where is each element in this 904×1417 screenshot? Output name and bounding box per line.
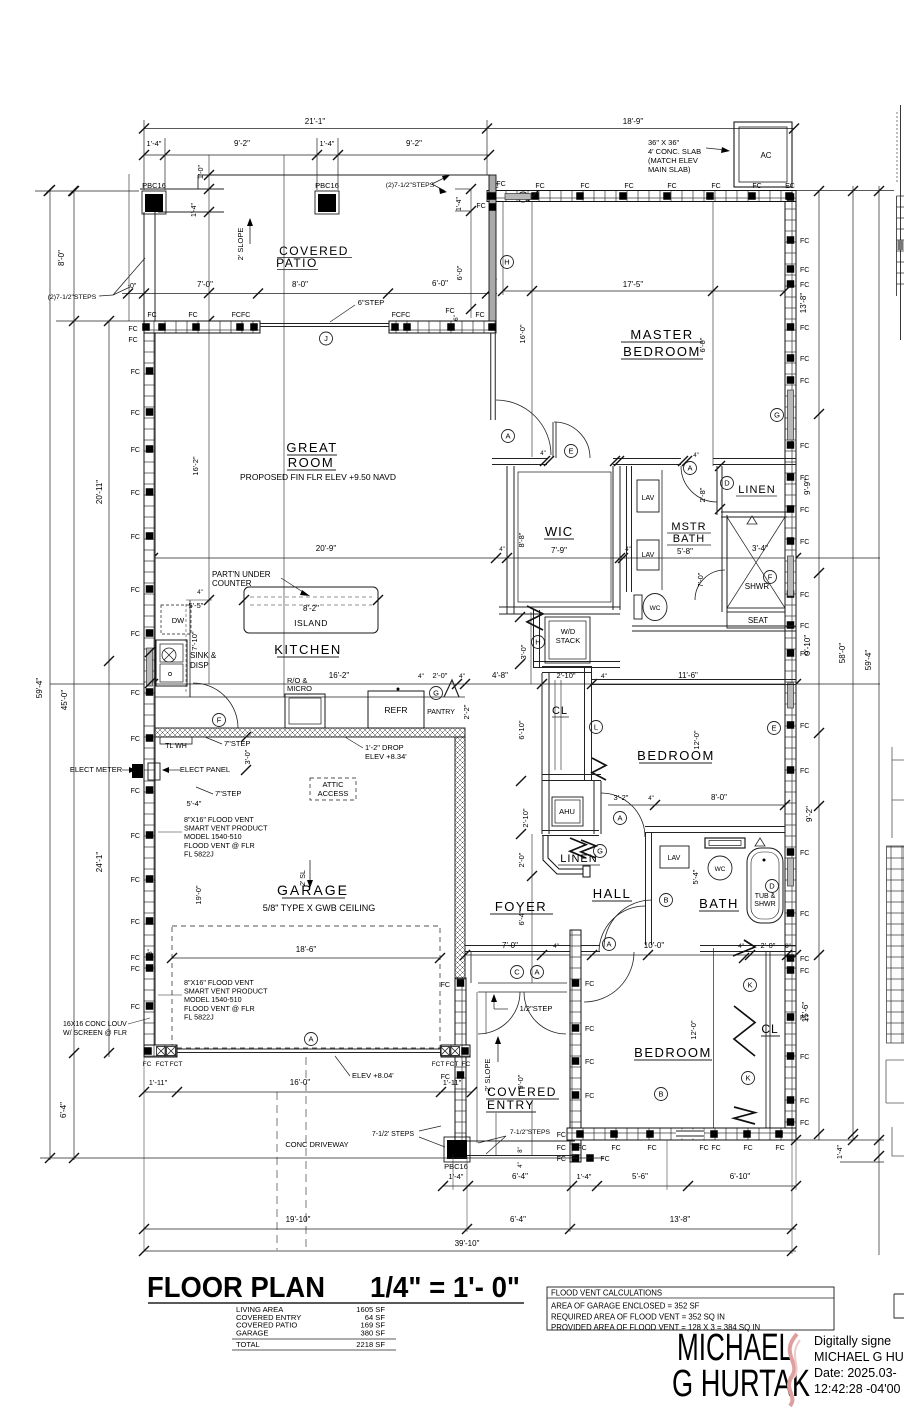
svg-text:MSTR: MSTR [671,521,706,533]
svg-text:MASTER: MASTER [630,327,693,342]
svg-text:FCFC: FCFC [392,312,411,319]
svg-text:ENTRY: ENTRY [487,1098,535,1112]
svg-text:DW: DW [172,616,185,625]
svg-text:6'-0": 6'-0" [698,337,707,352]
svg-text:FC: FC [131,966,140,973]
svg-text:6"STEP: 6"STEP [358,298,384,307]
svg-text:FC: FC [131,447,140,454]
svg-text:FC: FC [611,1145,620,1152]
svg-text:E: E [568,447,573,456]
svg-text:4": 4" [540,451,545,457]
svg-text:FC: FC [667,183,676,190]
svg-text:1'-11": 1'-11" [443,1078,462,1087]
svg-text:PART'N UNDER: PART'N UNDER [212,570,271,579]
svg-text:FC: FC [462,1061,471,1068]
svg-text:6'-4": 6'-4" [512,1172,528,1181]
svg-text:A: A [308,1035,313,1044]
svg-text:1'-2" DROP: 1'-2" DROP [365,743,404,752]
svg-text:6'-10": 6'-10" [517,720,526,739]
svg-text:59'-4": 59'-4" [35,678,44,699]
svg-text:18'-9": 18'-9" [623,117,644,126]
svg-text:FC: FC [475,312,484,319]
svg-text:TUB &: TUB & [755,893,776,900]
svg-text:FLOOR PLAN: FLOOR PLAN [147,1272,325,1304]
svg-text:FCT: FCT [446,1061,459,1068]
svg-text:GREAT: GREAT [286,440,337,455]
svg-text:MICHAEL G HU: MICHAEL G HU [814,1350,904,1364]
svg-text:3'-2": 3'-2" [614,793,629,802]
svg-text:FC: FC [188,312,197,319]
svg-text:FC: FC [131,788,140,795]
svg-text:FC: FC [800,911,809,918]
svg-text:2'-0": 2'-0" [761,941,776,950]
svg-text:4'-8": 4'-8" [492,671,508,680]
svg-text:WC: WC [715,866,726,873]
svg-text:BATH: BATH [673,533,706,545]
svg-text:SHWR: SHWR [754,901,775,908]
svg-text:16'-0": 16'-0" [518,324,527,343]
svg-text:A: A [505,432,510,441]
svg-text:16'-2": 16'-2" [329,671,350,680]
svg-text:1'-4": 1'-4" [456,197,463,211]
svg-text:7-1/2' STEPS: 7-1/2' STEPS [372,1131,415,1138]
svg-text:18'-6": 18'-6" [296,945,317,954]
svg-text:5/8" TYPE X GWB CEILING: 5/8" TYPE X GWB CEILING [263,903,376,913]
svg-text:FC: FC [476,203,485,210]
svg-text:16X16 CONC LOUV: 16X16 CONC LOUV [63,1021,127,1028]
svg-text:1'-4": 1'-4" [837,1145,844,1159]
svg-text:FC: FC [131,690,140,697]
svg-text:W/D: W/D [561,627,576,636]
svg-text:FC: FC [800,1015,809,1022]
svg-text:FC: FC [800,475,809,482]
svg-text:20'-9": 20'-9" [316,544,337,553]
svg-text:FC: FC [535,183,544,190]
svg-text:BEDROOM: BEDROOM [634,1045,712,1060]
svg-text:PBC16: PBC16 [444,1162,468,1171]
svg-text:6": 6" [454,315,460,320]
svg-text:17'-5": 17'-5" [623,280,644,289]
svg-text:FC: FC [800,539,809,546]
svg-text:FC: FC [131,955,140,962]
svg-text:FL 5822J: FL 5822J [184,849,214,858]
svg-text:FCT: FCT [170,1061,183,1068]
svg-text:ISLAND: ISLAND [294,618,328,628]
svg-text:4": 4" [693,453,698,459]
svg-text:TOTAL: TOTAL [236,1340,260,1349]
svg-text:8": 8" [147,948,154,955]
svg-text:FC: FC [441,982,450,989]
svg-text:FC: FC [585,1059,594,1066]
svg-text:FL 5822J: FL 5822J [184,1012,214,1021]
svg-text:FC: FC [128,326,137,333]
svg-text:9'-2": 9'-2" [805,806,814,822]
svg-text:-0": -0" [128,283,137,290]
svg-text:FC: FC [557,1132,566,1139]
svg-text:FC: FC [800,325,809,332]
svg-text:FC: FC [624,183,633,190]
svg-text:11'-6": 11'-6" [678,671,698,680]
svg-text:3'-0": 3'-0" [519,644,528,659]
svg-text:(2)7-1/2"STEPS: (2)7-1/2"STEPS [386,182,435,189]
svg-text:6'-10": 6'-10" [730,1172,751,1181]
svg-text:FC: FC [577,1145,586,1152]
svg-text:7'-10": 7'-10" [190,631,199,650]
svg-text:13'-8": 13'-8" [799,293,808,314]
svg-text:CONC DRIVEWAY: CONC DRIVEWAY [285,1140,348,1149]
svg-text:6'-4": 6'-4" [510,1215,526,1224]
svg-text:ATTIC: ATTIC [322,780,344,789]
svg-text:7-1/2"STEPS: 7-1/2"STEPS [510,1129,551,1136]
svg-text:FC: FC [800,443,809,450]
svg-text:FC: FC [800,267,809,274]
svg-text:FC: FC [800,1054,809,1061]
svg-text:2' SL: 2' SL [300,870,307,886]
svg-text:16'-2": 16'-2" [191,456,200,475]
svg-text:FC: FC [131,369,140,376]
svg-text:Digitally signe: Digitally signe [814,1334,891,1348]
svg-text:7'-0": 7'-0" [502,941,518,950]
svg-text:4": 4" [738,944,743,950]
svg-text:1/4" = 1'- 0": 1/4" = 1'- 0" [370,1272,520,1304]
svg-text:BATH: BATH [699,896,739,911]
svg-text:FC: FC [800,378,809,385]
svg-text:SINK &: SINK & [190,651,217,660]
svg-text:J: J [324,334,328,343]
svg-text:9'-2": 9'-2" [234,139,250,148]
svg-text:FC: FC [131,490,140,497]
svg-text:B: B [658,1090,663,1099]
svg-text:FC: FC [800,956,809,963]
svg-text:FC: FC [800,507,809,514]
svg-text:PBC16: PBC16 [315,181,339,190]
svg-text:F: F [768,573,773,582]
svg-text:ELEV +8.34': ELEV +8.34' [365,752,407,761]
svg-text:19'-0": 19'-0" [194,885,203,904]
svg-text:7"STEP: 7"STEP [224,739,250,748]
svg-text:FC: FC [585,981,594,988]
svg-text:LAV: LAV [668,855,681,862]
svg-text:TL WH: TL WH [165,743,187,750]
svg-text:LINEN: LINEN [560,853,597,865]
svg-text:2' SLOPE: 2' SLOPE [236,228,245,261]
svg-text:H: H [535,638,540,647]
svg-text:20'-11": 20'-11" [95,480,104,504]
svg-text:8'-0": 8'-0" [711,793,727,802]
svg-text:W/ SCREEN @ FLR: W/ SCREEN @ FLR [63,1030,127,1037]
svg-text:KITCHEN: KITCHEN [274,642,342,657]
svg-text:2218 SF: 2218 SF [356,1340,385,1349]
svg-text:2' SLOPE: 2' SLOPE [483,1059,492,1092]
svg-text:FC: FC [445,308,454,315]
svg-text:1'-4": 1'-4" [191,203,198,217]
svg-text:FC: FC [800,723,809,730]
svg-text:WIC: WIC [545,524,573,539]
svg-text:PATIO: PATIO [276,256,318,270]
svg-text:4": 4" [518,1162,524,1167]
svg-text:4": 4" [459,673,466,680]
svg-text:6'-0": 6'-0" [455,265,464,280]
svg-text:58'-0": 58'-0" [838,643,847,664]
svg-text:CL: CL [761,1022,778,1036]
svg-text:FC: FC [647,1145,656,1152]
svg-text:4": 4" [601,673,608,680]
svg-text:COUNTER: COUNTER [212,579,252,588]
svg-text:12:42:28 -04'00: 12:42:28 -04'00 [814,1382,901,1396]
svg-text:7'-0": 7'-0" [696,572,705,587]
svg-text:FC: FC [600,1156,609,1163]
svg-text:A: A [617,814,622,823]
svg-text:FC: FC [131,877,140,884]
svg-text:FC: FC [131,410,140,417]
svg-text:ROOM: ROOM [288,455,334,470]
svg-text:REFR: REFR [384,705,407,715]
svg-text:FC: FC [800,651,809,658]
svg-text:E: E [771,724,776,733]
svg-text:LINEN: LINEN [738,484,775,496]
svg-text:24'-1": 24'-1" [95,852,104,873]
svg-text:8'-0": 8'-0" [57,250,66,266]
svg-text:2'-10": 2'-10" [521,808,530,827]
svg-text:FC: FC [711,1145,720,1152]
svg-text:2'-2": 2'-2" [462,704,471,719]
svg-text:FC: FC [800,768,809,775]
svg-text:LAV: LAV [642,495,655,502]
svg-text:FC: FC [557,1156,566,1163]
svg-text:K: K [747,981,752,990]
svg-text:FC: FC [699,1145,708,1152]
svg-text:G: G [433,689,439,698]
svg-text:STACK: STACK [556,636,580,645]
svg-text:A: A [606,940,611,949]
svg-text:FLOOD VENT CALCULATIONS: FLOOD VENT CALCULATIONS [551,1289,662,1298]
svg-text:SEAT: SEAT [748,616,768,625]
svg-text:Date: 2025.03-: Date: 2025.03- [814,1366,897,1380]
svg-text:8'-0": 8'-0" [292,280,308,289]
svg-text:PROPOSED FIN FLR ELEV +9.50 NA: PROPOSED FIN FLR ELEV +9.50 NAVD [240,472,396,482]
svg-text:L: L [594,723,598,732]
svg-text:5'-8": 5'-8" [677,547,693,556]
svg-text:8": 8" [518,1147,524,1152]
svg-text:FC: FC [585,1026,594,1033]
svg-text:5'-4": 5'-4" [691,869,700,884]
svg-text:4": 4" [648,796,653,802]
svg-text:380 SF: 380 SF [361,1328,386,1337]
svg-text:FC: FC [496,181,505,188]
svg-text:G: G [774,411,780,420]
svg-text:D: D [724,479,730,488]
svg-text:ELECT PANEL: ELECT PANEL [180,765,230,774]
svg-text:9'-0": 9'-0" [516,1074,525,1089]
svg-text:MAIN SLAB): MAIN SLAB) [648,165,691,174]
svg-text:1'-4": 1'-4" [147,139,162,148]
svg-text:BEDROOM: BEDROOM [637,748,715,763]
svg-text:LAV: LAV [642,552,655,559]
svg-text:5'-4": 5'-4" [187,799,202,808]
svg-text:MICRO: MICRO [287,684,312,693]
svg-text:FC: FC [131,1004,140,1011]
svg-text:AREA OF GARAGE ENCLOSED = 352: AREA OF GARAGE ENCLOSED = 352 SF [551,1302,700,1311]
svg-text:1'-4": 1'-4" [449,1172,464,1181]
svg-text:6'-4": 6'-4" [517,910,526,925]
svg-text:FC: FC [800,1098,809,1105]
svg-text:4": 4" [499,547,504,553]
svg-text:13'-8": 13'-8" [670,1215,691,1224]
svg-text:4' CONC. SLAB: 4' CONC. SLAB [648,147,701,156]
svg-text:GARAGE: GARAGE [277,882,349,898]
svg-text:4": 4" [553,944,558,950]
svg-text:FC: FC [585,1093,594,1100]
svg-text:FC: FC [800,356,809,363]
svg-text:WC: WC [650,605,661,612]
svg-text:39'-10": 39'-10" [455,1239,480,1248]
svg-text:1'-11": 1'-11" [149,1078,168,1087]
svg-text:1'-4": 1'-4" [320,139,335,148]
svg-text:1'-4": 1'-4" [577,1172,592,1181]
svg-text:2'-0": 2'-0" [433,671,448,680]
svg-text:SHWR: SHWR [745,582,770,591]
svg-text:B: B [663,896,668,905]
svg-text:CL: CL [552,705,568,717]
svg-text:FC: FC [580,183,589,190]
svg-text:FC: FC [131,534,140,541]
svg-text:FC: FC [800,238,809,245]
svg-text:FC: FC [800,282,809,289]
svg-text:AC: AC [760,151,771,160]
svg-text:ELEV +8.04': ELEV +8.04' [352,1071,394,1080]
svg-text:D: D [769,882,775,891]
svg-text:12'-0": 12'-0" [689,1020,698,1039]
svg-text:FC: FC [557,1145,566,1152]
svg-text:1'-0": 1'-0" [198,165,205,179]
svg-text:G: G [597,847,603,856]
svg-text:K: K [745,1074,750,1083]
svg-text:4": 4" [418,673,425,680]
svg-text:FC: FC [800,592,809,599]
svg-text:59'-4": 59'-4" [864,650,873,671]
svg-text:7"STEP: 7"STEP [215,789,241,798]
svg-text:A: A [534,968,539,977]
svg-text:1/2"STEP: 1/2"STEP [520,1004,553,1013]
svg-text:36" X 36": 36" X 36" [648,138,680,147]
svg-text:REQUIRED AREA OF FLOOD VENT =: REQUIRED AREA OF FLOOD VENT = 352 SQ IN [551,1313,725,1322]
svg-text:7'-9": 7'-9" [551,546,567,555]
svg-text:FC: FC [775,1145,784,1152]
svg-text:H: H [504,258,509,267]
svg-text:2'-8": 2'-8" [698,487,707,502]
svg-text:8'-2": 8'-2" [303,604,319,613]
svg-text:FCT: FCT [432,1061,445,1068]
svg-text:AHU: AHU [559,807,575,816]
svg-text:A: A [687,464,692,473]
svg-text:C: C [514,968,520,977]
svg-text:GARAGE: GARAGE [236,1328,269,1337]
svg-text:(MATCH ELEV: (MATCH ELEV [648,156,698,165]
svg-text:PANTRY: PANTRY [427,709,455,716]
svg-text:19'-10": 19'-10" [286,1215,311,1224]
svg-text:PBC16: PBC16 [142,181,166,190]
svg-text:7'-0": 7'-0" [197,280,213,289]
svg-text:FC: FC [131,919,140,926]
svg-text:5'-6": 5'-6" [632,1172,648,1181]
svg-text:FC: FC [131,833,140,840]
svg-text:DISP: DISP [190,661,209,670]
svg-text:FC: FC [711,183,720,190]
svg-text:FC: FC [131,631,140,638]
svg-text:3'-4": 3'-4" [752,544,768,553]
svg-text:FC: FC [743,1145,752,1152]
svg-text:F: F [217,716,222,725]
svg-text:21'-1": 21'-1" [305,117,326,126]
svg-text:16'-0": 16'-0" [290,1078,311,1087]
svg-text:3'-0": 3'-0" [243,749,252,764]
svg-text:(2)7-1/2"STEPS: (2)7-1/2"STEPS [48,294,97,301]
svg-text:BEDROOM: BEDROOM [623,344,701,359]
svg-text:8": 8" [785,944,790,950]
svg-text:2'-0": 2'-0" [517,852,526,867]
svg-text:FCFC: FCFC [232,312,251,319]
svg-text:4": 4" [197,590,202,596]
svg-text:9'-2": 9'-2" [406,139,422,148]
svg-text:FC: FC [131,587,140,594]
svg-text:FC: FC [131,736,140,743]
svg-text:6'-4": 6'-4" [59,1102,68,1118]
svg-text:FC: FC [800,1120,809,1127]
svg-text:FC: FC [800,968,809,975]
svg-text:ACCESS: ACCESS [318,789,349,798]
svg-text:10'-0": 10'-0" [644,941,665,950]
svg-text:FC: FC [128,337,137,344]
svg-text:FCT: FCT [156,1061,169,1068]
svg-text:FC: FC [147,312,156,319]
svg-text:HALL: HALL [593,886,632,901]
svg-text:12'-0": 12'-0" [692,730,701,749]
svg-text:6'-0": 6'-0" [432,279,448,288]
svg-text:45'-0": 45'-0" [60,690,69,711]
svg-text:8'-8": 8'-8" [517,532,526,547]
svg-text:FC: FC [800,623,809,630]
svg-text:FC: FC [800,850,809,857]
svg-text:ELECT METER: ELECT METER [70,765,123,774]
